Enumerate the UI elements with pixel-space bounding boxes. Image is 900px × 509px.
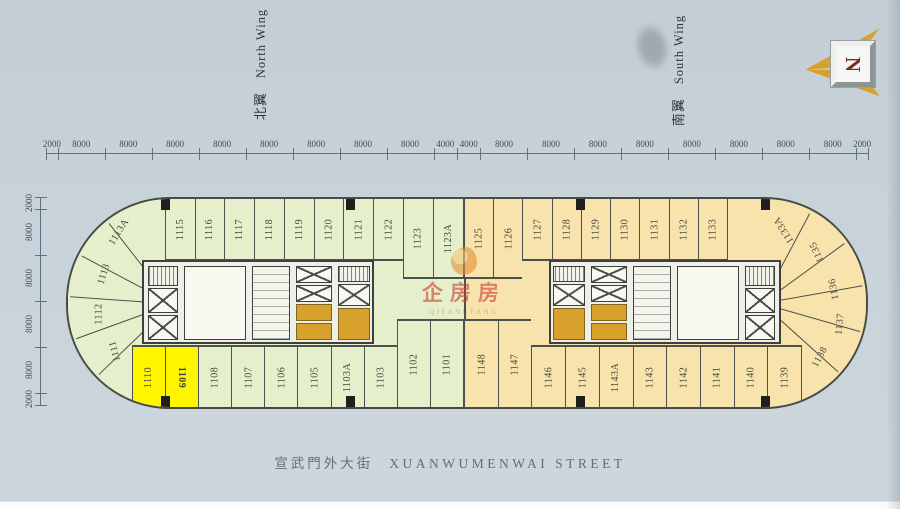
- room-1105[interactable]: 1105: [297, 345, 330, 407]
- room-number: 1103: [375, 366, 386, 388]
- room-number: 1101: [441, 353, 452, 375]
- room-number: 1128: [561, 218, 572, 240]
- room-number: 1118: [264, 218, 275, 239]
- dim-label: 8000: [354, 139, 372, 149]
- dim-label: 8000: [730, 139, 748, 149]
- left-dimension-ruler: 200080008000800080002000: [24, 197, 44, 405]
- elevator-icon: [148, 315, 178, 340]
- dim-tick: [152, 148, 153, 160]
- room-1132[interactable]: 1132: [669, 199, 698, 261]
- room-number: 1125: [474, 227, 485, 249]
- south-service-core: [549, 260, 781, 344]
- room-number: 1126: [503, 227, 514, 249]
- room-number: 1119: [294, 218, 305, 239]
- room-1123a[interactable]: 1123A: [433, 199, 464, 279]
- room-1103[interactable]: 1103: [364, 345, 397, 407]
- room-number: 1120: [324, 218, 335, 240]
- room-number: 1108: [210, 366, 221, 388]
- room-number: 1142: [678, 366, 689, 388]
- elevator-icon: [296, 285, 332, 302]
- elevator-icon: [148, 288, 178, 313]
- room-1123[interactable]: 1123: [403, 199, 433, 279]
- entry-marker: [761, 396, 770, 407]
- dim-label: 8000: [119, 139, 137, 149]
- room-number: 1140: [745, 366, 756, 388]
- room-number: 1106: [276, 366, 287, 388]
- dim-tick: [621, 148, 622, 160]
- room-number: 1130: [620, 218, 631, 240]
- elevator-icon: [338, 284, 370, 306]
- street-cn: 宣武門外大街: [274, 456, 373, 471]
- room-number: 1107: [243, 366, 254, 388]
- room-number: 1146: [543, 366, 554, 388]
- room-1141[interactable]: 1141: [700, 345, 734, 407]
- dim-tick: [856, 148, 857, 160]
- dim-label: 2000: [24, 390, 34, 408]
- room-1101[interactable]: 1101: [430, 319, 464, 407]
- dim-tick: [715, 148, 716, 160]
- stair-icon: [338, 266, 370, 282]
- room-1127[interactable]: 1127: [522, 199, 551, 261]
- room-1139[interactable]: 1139: [767, 345, 802, 407]
- dim-label: 8000: [166, 139, 184, 149]
- dim-tick: [35, 209, 47, 210]
- room-1143[interactable]: 1143: [633, 345, 667, 407]
- room-number: 1103A: [342, 362, 353, 391]
- room-1133[interactable]: 1133: [698, 199, 728, 261]
- room-1108[interactable]: 1108: [198, 345, 231, 407]
- room-number: 1148: [476, 353, 487, 375]
- room-number: 1143A: [611, 362, 622, 391]
- north-wing-label: 北翼North Wing: [238, 8, 282, 120]
- room-1122[interactable]: 1122: [373, 199, 403, 261]
- room-1117[interactable]: 1117: [224, 199, 254, 261]
- dim-tick: [105, 148, 106, 160]
- street-en: XUANWUMENWAI STREET: [389, 456, 625, 471]
- north-wing-en: North Wing: [255, 8, 269, 77]
- scan-edge-shadow: [886, 0, 900, 509]
- dim-tick: [809, 148, 810, 160]
- service-room: [677, 266, 739, 340]
- service-room: [184, 266, 246, 340]
- dim-tick: [574, 148, 575, 160]
- dim-label: 8000: [777, 139, 795, 149]
- room-number: 1112: [94, 303, 105, 324]
- elevator-icon: [591, 285, 627, 302]
- dim-tick: [457, 148, 458, 160]
- room-number: 1137: [834, 313, 847, 336]
- compass-icon: N: [804, 26, 882, 104]
- room-number: 1147: [510, 353, 521, 375]
- south-top-room-row: 112511261127112811291130113111321133: [464, 199, 728, 261]
- dim-label: 8000: [824, 139, 842, 149]
- north-service-core: [142, 260, 374, 344]
- dim-tick: [35, 405, 47, 406]
- entry-marker: [576, 199, 585, 210]
- elevator-icon: [591, 266, 627, 283]
- dim-tick: [35, 347, 47, 348]
- entry-marker: [161, 396, 170, 407]
- stair-icon: [745, 266, 775, 286]
- room-1129[interactable]: 1129: [581, 199, 610, 261]
- dim-label: 8000: [213, 139, 231, 149]
- washroom-area: [633, 266, 671, 340]
- gold-elevator-icon: [553, 308, 585, 340]
- entry-marker: [576, 396, 585, 407]
- room-number: 1141: [712, 366, 723, 388]
- room-1142[interactable]: 1142: [666, 345, 700, 407]
- room-1116[interactable]: 1116: [195, 199, 225, 261]
- dim-tick: [58, 148, 59, 160]
- dim-label: 8000: [72, 139, 90, 149]
- room-number: 1102: [408, 353, 419, 375]
- north-bottom-room-row: 1110110911081107110611051103A11031102110…: [132, 345, 464, 407]
- south-wing-label: 南翼South Wing: [656, 14, 700, 126]
- gold-elevator-icon: [296, 323, 332, 340]
- room-1102[interactable]: 1102: [397, 319, 430, 407]
- dim-label: 2000: [24, 194, 34, 212]
- entry-marker: [761, 199, 770, 210]
- dim-tick: [480, 148, 481, 160]
- room-number: 1117: [234, 218, 245, 239]
- entry-marker: [346, 396, 355, 407]
- room-number: 1123: [413, 227, 424, 249]
- compass-north-letter: N: [840, 56, 865, 71]
- north-top-room-row: 1115111611171118111911201121112211231123…: [165, 199, 464, 261]
- elevator-icon: [553, 284, 585, 306]
- room-number: 1109: [177, 366, 188, 387]
- room-number: 1121: [353, 218, 364, 240]
- dim-tick: [387, 148, 388, 160]
- elevator-icon: [745, 288, 775, 313]
- dim-tick: [434, 148, 435, 160]
- stair-icon: [553, 266, 585, 282]
- entry-marker: [161, 199, 170, 210]
- dim-tick: [527, 148, 528, 160]
- room-1143a[interactable]: 1143A: [599, 345, 633, 407]
- room-number: 1116: [205, 218, 216, 239]
- dim-label: 8000: [401, 139, 419, 149]
- room-1107[interactable]: 1107: [231, 345, 264, 407]
- room-number: 1133: [707, 218, 718, 240]
- room-1118[interactable]: 1118: [254, 199, 284, 261]
- dim-label: 4000: [436, 139, 454, 149]
- room-number: 1145: [577, 366, 588, 388]
- dim-tick: [35, 197, 47, 198]
- dim-label: 8000: [307, 139, 325, 149]
- room-1119[interactable]: 1119: [284, 199, 314, 261]
- room-1146[interactable]: 1146: [531, 345, 565, 407]
- building-floor-plan: 1115111611171118111911201121112211231123…: [66, 197, 868, 409]
- dim-label: 4000: [460, 139, 478, 149]
- south-wing-en: South Wing: [673, 14, 687, 83]
- gold-elevator-icon: [591, 323, 627, 340]
- gold-elevator-icon: [591, 304, 627, 321]
- street-label: 宣武門外大街XUANWUMENWAI STREET: [0, 452, 900, 472]
- top-dimension-ruler: 2000800080008000800080008000800080004000…: [46, 138, 868, 162]
- room-number: 1143: [644, 366, 655, 388]
- room-1120[interactable]: 1120: [314, 199, 344, 261]
- dim-tick: [868, 148, 869, 160]
- gold-elevator-icon: [296, 304, 332, 321]
- room-1125[interactable]: 1125: [464, 199, 493, 279]
- room-1130[interactable]: 1130: [610, 199, 639, 261]
- room-1109[interactable]: 1109: [165, 345, 198, 407]
- gold-elevator-icon: [338, 308, 370, 340]
- room-1106[interactable]: 1106: [264, 345, 297, 407]
- dim-label: 8000: [260, 139, 278, 149]
- room-number: 1127: [532, 218, 543, 240]
- elevator-icon: [296, 266, 332, 283]
- room-number: 1123A: [443, 223, 454, 252]
- room-number: 1132: [678, 218, 689, 240]
- dim-label: 8000: [24, 361, 34, 379]
- dim-tick: [762, 148, 763, 160]
- dim-tick: [199, 148, 200, 160]
- south-wing-cn: 南翼: [672, 98, 687, 126]
- dim-tick: [35, 393, 47, 394]
- room-1131[interactable]: 1131: [639, 199, 668, 261]
- washroom-area: [252, 266, 290, 340]
- room-1147[interactable]: 1147: [498, 319, 532, 407]
- room-number: 1122: [383, 218, 394, 240]
- dim-label: 8000: [683, 139, 701, 149]
- dim-tick: [35, 301, 47, 302]
- elevator-icon: [745, 315, 775, 340]
- dim-tick: [340, 148, 341, 160]
- entry-marker: [346, 199, 355, 210]
- room-number: 1131: [649, 218, 660, 240]
- dim-label: 8000: [24, 315, 34, 333]
- room-number: 1115: [175, 218, 186, 239]
- room-number: 1110: [144, 366, 155, 387]
- dim-label: 8000: [636, 139, 654, 149]
- stair-icon: [148, 266, 178, 286]
- room-1148[interactable]: 1148: [464, 319, 498, 407]
- dim-tick: [46, 148, 47, 160]
- compass-square: N: [831, 41, 875, 87]
- dim-label: 8000: [589, 139, 607, 149]
- room-1126[interactable]: 1126: [493, 199, 522, 279]
- dim-label: 8000: [24, 223, 34, 241]
- dim-tick: [293, 148, 294, 160]
- room-number: 1129: [590, 218, 601, 240]
- dim-label: 8000: [24, 269, 34, 287]
- dim-tick: [35, 255, 47, 256]
- dim-tick: [246, 148, 247, 160]
- south-bottom-room-row: 11481147114611451143A1143114211411140113…: [464, 345, 802, 407]
- north-wing-cn: 北翼: [254, 92, 269, 120]
- dim-label: 8000: [495, 139, 513, 149]
- floor-plan-page: 北翼North Wing 南翼South Wing N 200080008000…: [0, 0, 900, 509]
- dim-label: 8000: [542, 139, 560, 149]
- room-number: 1105: [309, 366, 320, 388]
- page-bottom-edge: [0, 501, 900, 509]
- dim-tick: [668, 148, 669, 160]
- room-number: 1139: [779, 366, 790, 388]
